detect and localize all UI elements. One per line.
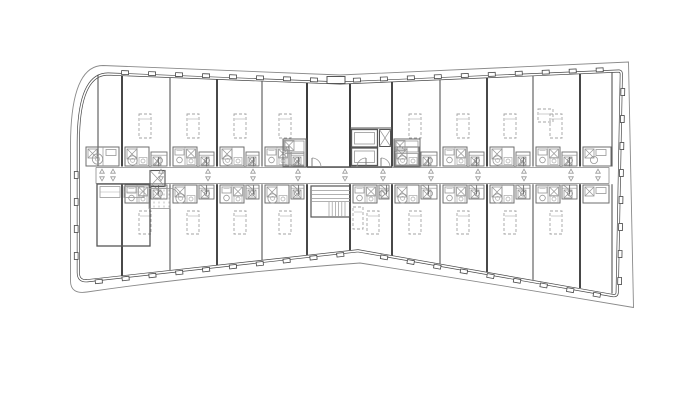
floor-plan-canvas	[0, 0, 700, 420]
floor-plan-drawing	[0, 0, 700, 420]
